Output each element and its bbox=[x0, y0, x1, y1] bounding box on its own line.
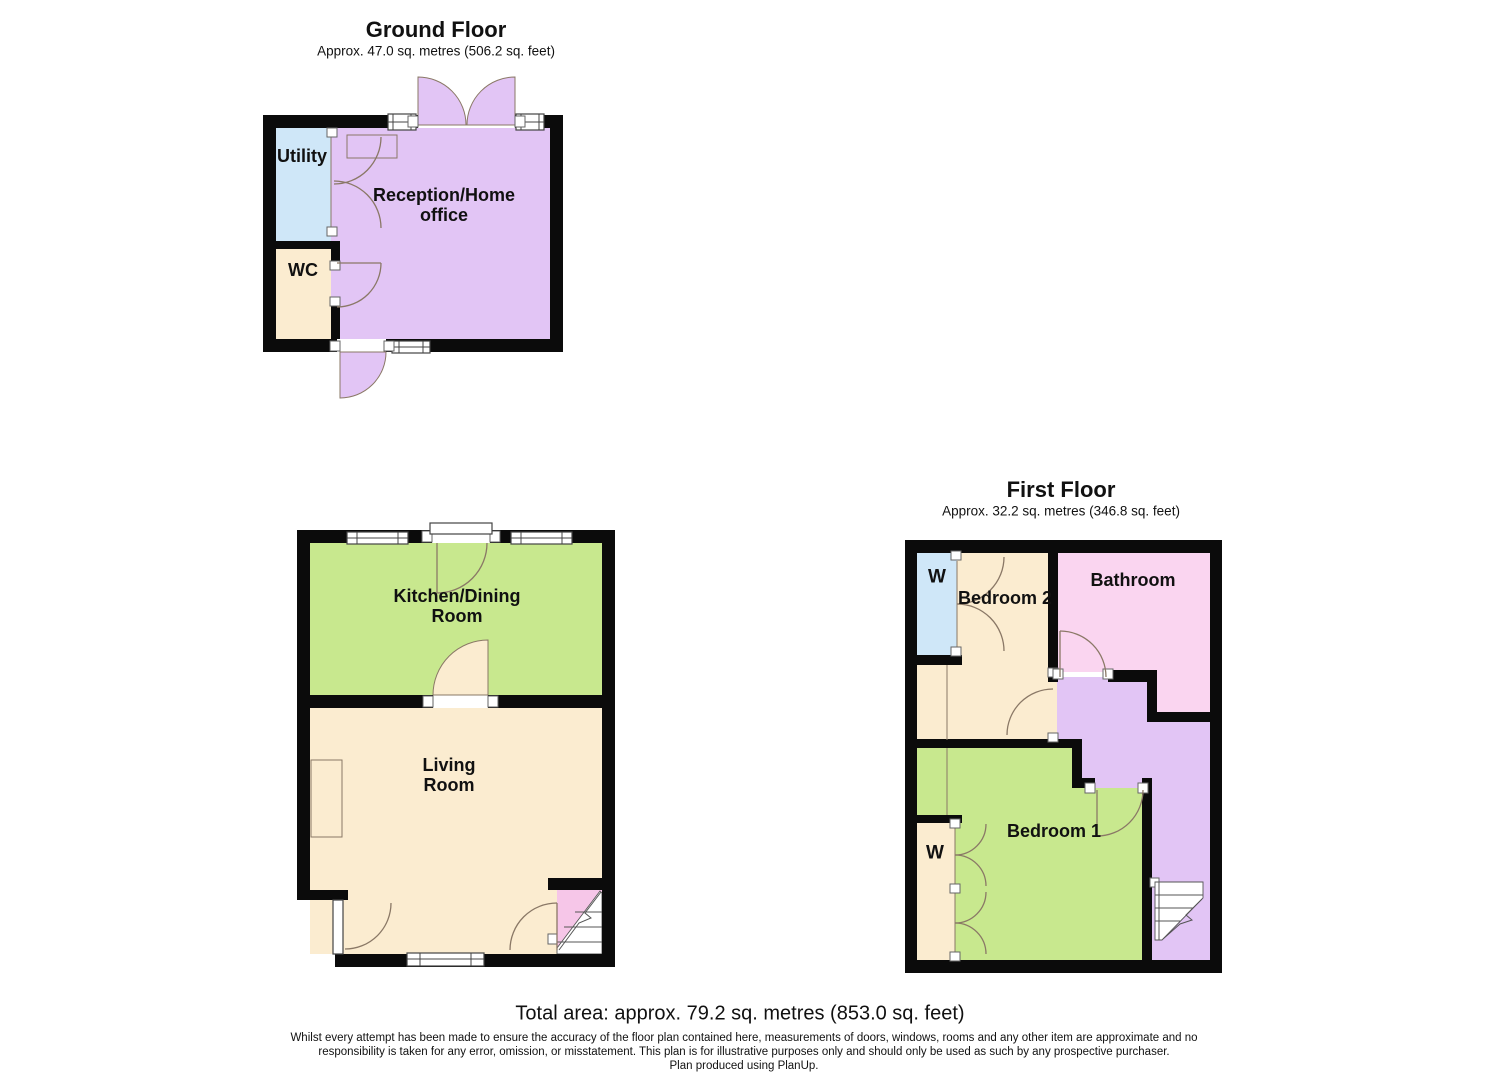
ground-floor-plan bbox=[263, 77, 563, 398]
ground-floor-title: Ground Floor bbox=[366, 17, 507, 43]
kitchen-label: Kitchen/Dining Room bbox=[394, 587, 521, 627]
bathroom-label: Bathroom bbox=[1091, 571, 1176, 591]
utility-label: Utility bbox=[277, 147, 327, 167]
first-floor-plan bbox=[905, 540, 1222, 973]
ground-floor-area: Approx. 47.0 sq. metres (506.2 sq. feet) bbox=[317, 44, 555, 59]
disclaimer-text: Whilst every attempt has been made to en… bbox=[244, 1031, 1244, 1073]
reception-label: Reception/Home office bbox=[373, 186, 515, 226]
bedroom2-label: Bedroom 2 bbox=[958, 589, 1052, 609]
floorplan-drawing bbox=[0, 0, 1485, 1080]
french-doors bbox=[418, 77, 515, 125]
wardrobe-bottom-label: W bbox=[926, 844, 944, 865]
room-utility bbox=[276, 128, 331, 241]
window-icon bbox=[392, 341, 430, 353]
bedroom1-label: Bedroom 1 bbox=[1007, 822, 1101, 842]
window-icon bbox=[407, 953, 484, 966]
floorplan-page: Ground Floor Approx. 47.0 sq. metres (50… bbox=[0, 0, 1485, 1080]
window-icon bbox=[347, 532, 408, 544]
rear-door-swing bbox=[340, 352, 386, 398]
kitchen-door-frame bbox=[430, 523, 492, 534]
stairs-ground bbox=[557, 890, 602, 954]
wardrobe-top-label: W bbox=[928, 568, 946, 589]
first-floor-area: Approx. 32.2 sq. metres (346.8 sq. feet) bbox=[942, 504, 1180, 519]
total-area-text: Total area: approx. 79.2 sq. metres (853… bbox=[515, 1003, 964, 1026]
wc-label: WC bbox=[288, 261, 318, 281]
living-label: Living Room bbox=[423, 756, 476, 796]
room-reception bbox=[331, 128, 550, 339]
front-door-frame bbox=[333, 900, 343, 954]
first-floor-title: First Floor bbox=[1007, 477, 1116, 503]
window-icon bbox=[511, 532, 572, 544]
